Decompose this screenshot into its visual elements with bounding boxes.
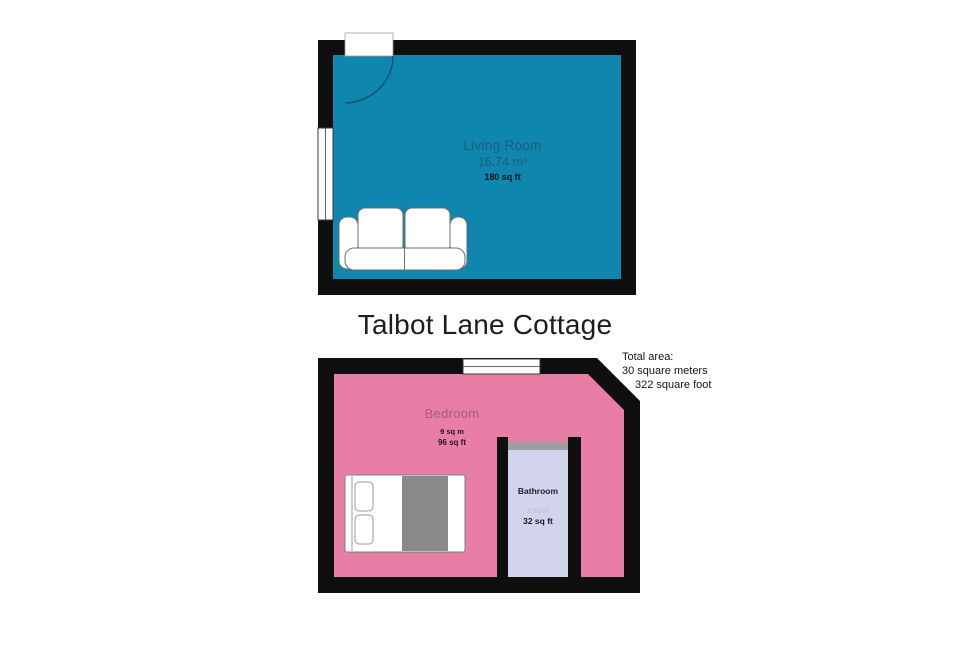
bathroom-wall-left — [497, 437, 508, 593]
bathroom-floor — [508, 450, 568, 577]
bed-pillow-top — [355, 482, 373, 511]
lower-floor-plan — [315, 350, 645, 600]
bed-pillow-bottom — [355, 515, 373, 544]
bathroom-counter — [508, 442, 568, 450]
bed — [345, 475, 465, 552]
window-left — [318, 128, 333, 220]
sofa — [339, 208, 467, 270]
window-top — [463, 359, 540, 374]
floor-plan-canvas: Living Room 16.74 m² 180 sq ft Talbot La… — [0, 0, 960, 671]
plan-title: Talbot Lane Cottage — [320, 309, 650, 341]
upper-floor-plan — [315, 30, 645, 300]
bathroom-wall-right — [568, 437, 581, 593]
door-opening — [345, 33, 393, 56]
bed-blanket — [402, 476, 448, 551]
sofa-back-cushion-right — [405, 208, 450, 252]
sofa-back-cushion-left — [358, 208, 403, 252]
